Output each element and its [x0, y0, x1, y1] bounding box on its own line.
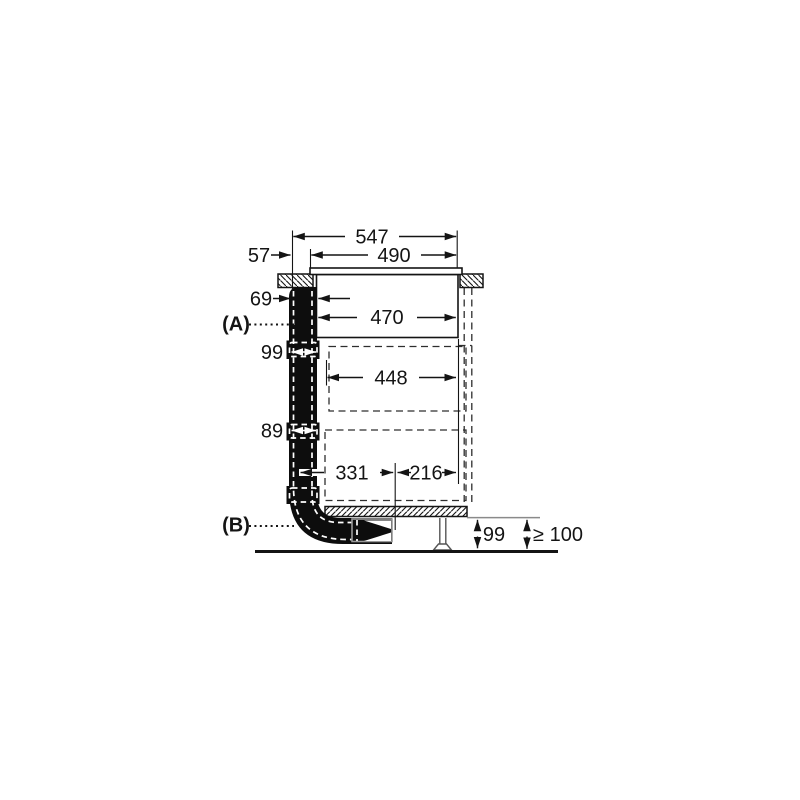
dim-glass: 490	[311, 245, 457, 268]
callout-a-label: (A)	[222, 314, 250, 336]
duct-adapter	[352, 519, 392, 542]
cabinet-wall-dashed	[459, 288, 472, 507]
hob-glass-plate	[310, 268, 462, 275]
dim-duct-upper-value: 99	[261, 342, 283, 364]
installation-diagram: 547 490 57 69 (A) 99 470 448	[0, 0, 800, 800]
callout-b-label: (B)	[222, 515, 250, 537]
dim-duct-top-value: 69	[250, 289, 272, 311]
dim-glass-value: 490	[377, 245, 410, 267]
diagram-canvas: 547 490 57 69 (A) 99 470 448	[0, 0, 800, 800]
dim-plinth: 99	[478, 520, 506, 549]
callout-b: (B)	[222, 515, 294, 537]
dim-body-value: 470	[370, 307, 403, 329]
worktop-right-section	[460, 274, 483, 288]
dim-front: 57	[248, 245, 291, 267]
dim-plinth-value: 99	[483, 524, 505, 546]
dim-inner-value: 448	[374, 368, 407, 390]
dim-bottom-right-value: 216	[409, 463, 442, 485]
base-shelf-hatch	[325, 507, 467, 517]
dim-inner: 448	[327, 360, 457, 390]
callout-a: (A)	[222, 314, 294, 336]
cabinet-leg	[434, 518, 452, 550]
dim-bottom-left-value: 331	[335, 463, 368, 485]
worktop-left-section	[278, 274, 313, 288]
dim-duct-lower-value: 89	[261, 421, 283, 443]
dim-clearance: ≥ 100	[527, 520, 583, 549]
dim-front-value: 57	[248, 245, 270, 267]
dim-clearance-value: ≥ 100	[533, 524, 583, 546]
